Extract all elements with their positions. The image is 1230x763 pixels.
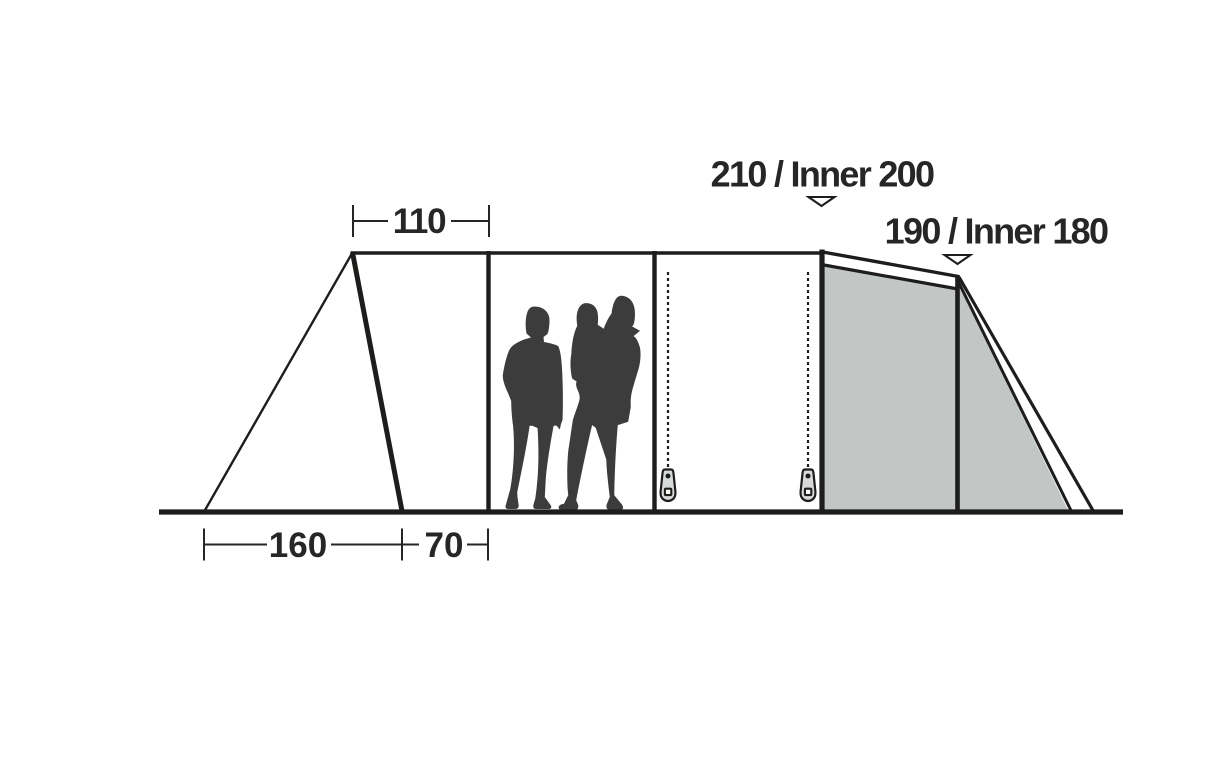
- svg-text:70: 70: [425, 526, 464, 565]
- svg-text:210 / Inner 200: 210 / Inner 200: [711, 154, 934, 195]
- svg-text:110: 110: [393, 202, 446, 241]
- svg-text:160: 160: [269, 526, 327, 565]
- svg-text:190 / Inner 180: 190 / Inner 180: [885, 211, 1108, 252]
